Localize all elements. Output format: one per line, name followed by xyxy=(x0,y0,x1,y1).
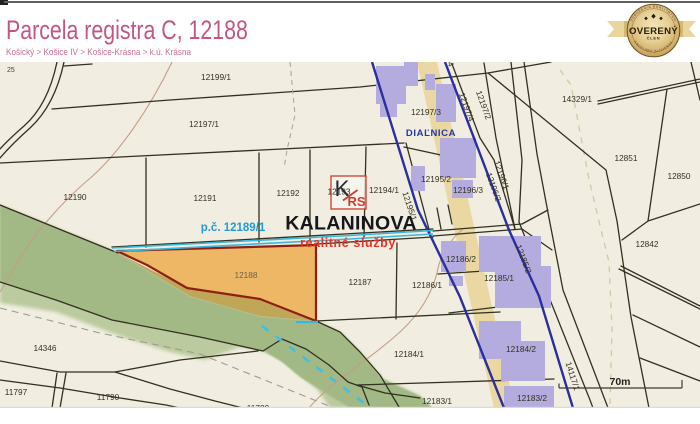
svg-text:12192: 12192 xyxy=(276,188,299,198)
svg-text:70m: 70m xyxy=(609,376,630,388)
svg-text:12842: 12842 xyxy=(635,239,658,249)
svg-text:12184/2: 12184/2 xyxy=(506,344,536,354)
svg-text:12186/1: 12186/1 xyxy=(412,280,442,290)
svg-text:12183/2: 12183/2 xyxy=(517,393,547,403)
svg-text:12196/3: 12196/3 xyxy=(453,185,483,195)
svg-text:p.č. 12189/1: p.č. 12189/1 xyxy=(201,222,266,234)
svg-text:12190: 12190 xyxy=(63,192,86,202)
svg-text:12187: 12187 xyxy=(348,277,371,287)
svg-text:12197/1: 12197/1 xyxy=(189,119,219,129)
svg-text:RS: RS xyxy=(348,194,366,209)
svg-text:12186/2: 12186/2 xyxy=(446,254,476,264)
svg-text:25: 25 xyxy=(7,67,15,74)
svg-text:14346: 14346 xyxy=(33,343,56,353)
svg-text:12195/2: 12195/2 xyxy=(421,174,451,184)
svg-text:12197/3: 12197/3 xyxy=(411,107,441,117)
svg-text:DIAĽNICA: DIAĽNICA xyxy=(406,128,456,139)
svg-text:12851: 12851 xyxy=(614,153,637,163)
svg-text:12184/1: 12184/1 xyxy=(394,349,424,359)
svg-text:11790: 11790 xyxy=(97,392,120,402)
svg-text:12191: 12191 xyxy=(193,193,216,203)
svg-text:KALANINOVA: KALANINOVA xyxy=(285,213,417,235)
svg-text:12850: 12850 xyxy=(667,171,690,181)
svg-text:12194/1: 12194/1 xyxy=(369,185,399,195)
svg-text:12183/1: 12183/1 xyxy=(422,396,452,406)
svg-text:ČLEN: ČLEN xyxy=(647,35,661,40)
svg-text:14329/1: 14329/1 xyxy=(562,94,592,104)
svg-text:12185/1: 12185/1 xyxy=(484,273,514,283)
svg-text:12188: 12188 xyxy=(234,270,257,280)
svg-text:11797: 11797 xyxy=(5,387,28,397)
svg-text:realitné služby: realitné služby xyxy=(300,236,396,250)
svg-text:12199/1: 12199/1 xyxy=(201,72,231,82)
